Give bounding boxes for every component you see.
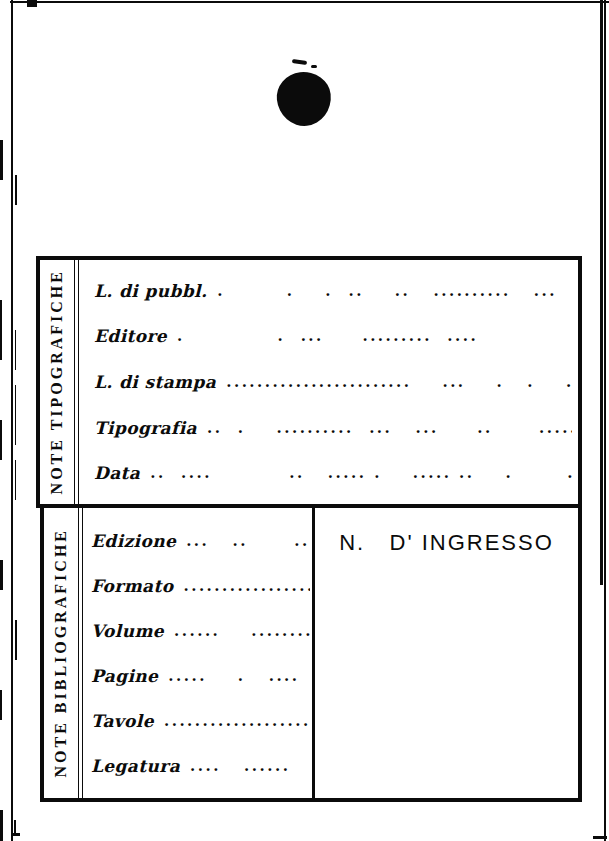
dotted-leader: . . ... ......... .... .. .....	[177, 327, 572, 345]
field-label: Data	[94, 463, 140, 483]
field-label: Legatura	[91, 756, 180, 776]
field-label: Edizione	[91, 531, 176, 551]
scan-noise-left	[0, 300, 2, 360]
dotted-leader: .... ...... .	[190, 757, 310, 775]
dotted-leader: ........................ ... . . .......…	[226, 373, 572, 391]
scan-edge-top	[10, 1, 609, 3]
scan-blob-top-left	[27, 0, 37, 7]
ink-dot	[274, 69, 333, 128]
dotted-leader: ......................	[183, 577, 310, 595]
tipografiche-fields: L. di pubbl. . . . .. .. .......... ... …	[79, 260, 578, 504]
field-label: L. di pubbl.	[94, 281, 207, 301]
side-column: NOTE TIPOGRAFICHE	[40, 260, 74, 504]
scan-mark-bottom-left	[12, 833, 20, 836]
field-row-edizione: Edizione ... .. .. ....	[91, 531, 310, 551]
dotted-leader: . . . .. .. .......... ... .. .. .......	[217, 282, 572, 300]
field-row-l-di-pubbl: L. di pubbl. . . . .. .. .......... ... …	[94, 281, 572, 301]
note-tipografiche-box: NOTE TIPOGRAFICHE L. di pubbl. . . . .. …	[36, 256, 582, 508]
field-label: Formato	[91, 576, 173, 596]
field-label: Editore	[94, 326, 167, 346]
scan-dash-left	[15, 330, 16, 370]
scan-edge-right-thick	[600, 0, 603, 585]
field-label: Tipografia	[94, 418, 197, 438]
field-row-pagine: Pagine ..... . .... . ...	[91, 666, 310, 686]
field-label: Volume	[91, 621, 164, 641]
scan-dash-left	[15, 175, 17, 205]
dotted-leader: .....................	[164, 712, 310, 730]
ink-speck	[292, 59, 307, 65]
section-side-label-bibliografiche: NOTE BIBLIOGRAFICHE	[52, 528, 70, 777]
scan-edge-right-thin	[604, 0, 606, 841]
dotted-leader: ... .. .. ....	[186, 532, 310, 550]
note-bibliografiche-box: NOTE BIBLIOGRAFICHE Edizione ... .. .. .…	[40, 508, 582, 802]
scan-dash-left	[15, 620, 17, 660]
ingresso-cell: N. D' INGRESSO	[315, 508, 578, 798]
field-row-tavole: Tavole .....................	[91, 711, 310, 731]
side-column: NOTE BIBLIOGRAFICHE	[44, 508, 78, 798]
section-side-label-tipografiche: NOTE TIPOGRAFICHE	[48, 269, 66, 494]
scanned-library-card: NOTE TIPOGRAFICHE L. di pubbl. . . . .. …	[0, 0, 609, 841]
field-label: L. di stampa	[94, 372, 216, 392]
dotted-leader: ..... . .... . ...	[168, 667, 310, 685]
scan-edge-left	[11, 0, 13, 841]
bibliografiche-fields: Edizione ... .. .. .... Formato ........…	[83, 508, 312, 798]
field-row-legatura: Legatura .... ...... .	[91, 756, 310, 776]
dotted-leader: ...... ............	[174, 622, 310, 640]
field-row-volume: Volume ...... ............	[91, 621, 310, 641]
field-row-tipografia: Tipografia .. . .......... ... ... .. ..…	[94, 418, 572, 438]
scan-dash-left	[15, 460, 16, 500]
ingresso-heading: N. D' INGRESSO	[339, 530, 554, 555]
field-row-editore: Editore . . ... ......... .... .. .....	[94, 326, 572, 346]
scan-hook-bottom-right	[593, 836, 607, 839]
scan-noise-left	[0, 560, 3, 590]
scan-noise-left	[0, 810, 3, 841]
field-row-data: Data .. .... .. ..... . ..... .. . . ...…	[94, 463, 572, 483]
dotted-leader: .. .... .. ..... . ..... .. . . .....	[150, 464, 572, 482]
scan-dash-left	[15, 385, 16, 445]
dotted-leader: .. . .......... ... ... .. .............	[207, 419, 572, 437]
field-row-l-di-stampa: L. di stampa ........................ ..…	[94, 372, 572, 392]
scan-noise-left	[0, 140, 3, 180]
field-label: Pagine	[91, 666, 158, 686]
scan-noise-left	[0, 690, 2, 720]
field-row-formato: Formato ......................	[91, 576, 310, 596]
scan-noise-left	[0, 420, 2, 460]
field-label: Tavole	[91, 711, 154, 731]
ink-speck	[311, 65, 317, 68]
